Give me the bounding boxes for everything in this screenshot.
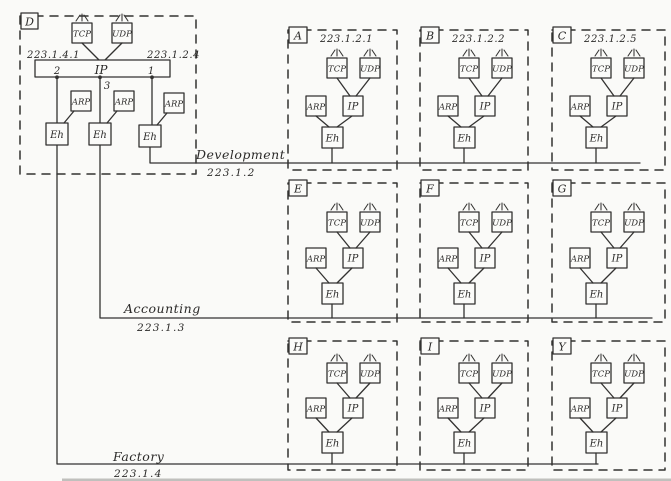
host-tcp-label: TCP — [328, 370, 346, 380]
host-letter-label: G — [558, 183, 567, 196]
host-letter-label: C — [558, 30, 567, 43]
host-udp-label: UDP — [624, 219, 644, 229]
host-udp-label: UDP — [360, 370, 380, 380]
bus-address-label: 223.1.4 — [113, 468, 162, 480]
host-tcp-label: TCP — [328, 219, 346, 229]
router-port-1: 1 — [148, 66, 154, 77]
bus-name-label: Factory — [112, 449, 165, 464]
host-letter-label: B — [425, 30, 434, 43]
host-ip-label: IP — [611, 404, 623, 415]
host-udp-label: UDP — [624, 65, 644, 75]
router-eh-label: Eh — [142, 132, 157, 143]
bus-name-label: Accounting — [123, 301, 201, 316]
host-arp-label: ARP — [306, 405, 326, 415]
host-udp-label: UDP — [492, 65, 512, 75]
host-ip-label: IP — [479, 254, 491, 265]
router-port-3: 3 — [104, 81, 110, 92]
host-arp-label: ARP — [306, 103, 326, 113]
host-letter-label: F — [425, 183, 434, 196]
host-ip-label: IP — [479, 404, 491, 415]
bus-address-label: 223.1.2 — [206, 167, 255, 179]
router-letter-label: D — [24, 16, 34, 29]
router-tcp-label: TCP — [73, 30, 91, 40]
host-arp-label: ARP — [570, 405, 590, 415]
router-arp-label: ARP — [164, 100, 184, 110]
bus-address-label: 223.1.3 — [136, 322, 185, 334]
host-letter-label: E — [293, 183, 302, 196]
host-arp-label: ARP — [306, 255, 326, 265]
host-letter-label: A — [293, 30, 302, 43]
host-udp-label: UDP — [360, 65, 380, 75]
host-ip-label: IP — [347, 404, 359, 415]
host-eh-label: Eh — [325, 439, 340, 450]
router-arp-label: ARP — [114, 98, 134, 108]
host-eh-label: Eh — [589, 290, 604, 301]
network-diagram: Development223.1.2Accounting223.1.3Facto… — [0, 0, 671, 481]
host-tcp-label: TCP — [460, 370, 478, 380]
host-eh-label: Eh — [457, 134, 472, 145]
host-arp-label: ARP — [438, 255, 458, 265]
host-eh-label: Eh — [325, 290, 340, 301]
router-eh-label: Eh — [92, 130, 107, 141]
host-ip-label: IP — [611, 102, 623, 113]
host-eh-label: Eh — [457, 439, 472, 450]
host-eh-label: Eh — [457, 290, 472, 301]
host-tcp-label: TCP — [460, 65, 478, 75]
host-eh-label: Eh — [589, 439, 604, 450]
host-ip-label: IP — [611, 254, 623, 265]
bus-name-label: Development — [195, 147, 286, 162]
host-udp-label: UDP — [360, 219, 380, 229]
host-tcp-label: TCP — [460, 219, 478, 229]
host-letter-label: H — [292, 341, 303, 354]
router-port-2: 2 — [53, 66, 60, 77]
host-address: 223.1.2.2 — [451, 34, 505, 45]
host-tcp-label: TCP — [592, 370, 610, 380]
host-address: 223.1.2.5 — [583, 34, 637, 45]
host-tcp-label: TCP — [328, 65, 346, 75]
host-ip-label: IP — [347, 254, 359, 265]
host-eh-label: Eh — [589, 134, 604, 145]
host-arp-label: ARP — [438, 405, 458, 415]
host-ip-label: IP — [479, 102, 491, 113]
host-udp-label: UDP — [492, 370, 512, 380]
router-udp-label: UDP — [112, 30, 132, 40]
host-eh-label: Eh — [325, 134, 340, 145]
scanned-network-diagram: Development223.1.2Accounting223.1.3Facto… — [0, 0, 671, 481]
host-arp-label: ARP — [570, 103, 590, 113]
host-udp-label: UDP — [492, 219, 512, 229]
router-eh-label: Eh — [49, 130, 64, 141]
router-arp-label: ARP — [71, 98, 91, 108]
host-ip-label: IP — [347, 102, 359, 113]
host-arp-label: ARP — [438, 103, 458, 113]
host-arp-label: ARP — [570, 255, 590, 265]
router-ip-label: IP — [94, 63, 109, 77]
host-letter-label: I — [427, 341, 433, 354]
host-udp-label: UDP — [624, 370, 644, 380]
host-tcp-label: TCP — [592, 219, 610, 229]
host-tcp-label: TCP — [592, 65, 610, 75]
host-address: 223.1.2.1 — [319, 34, 373, 45]
